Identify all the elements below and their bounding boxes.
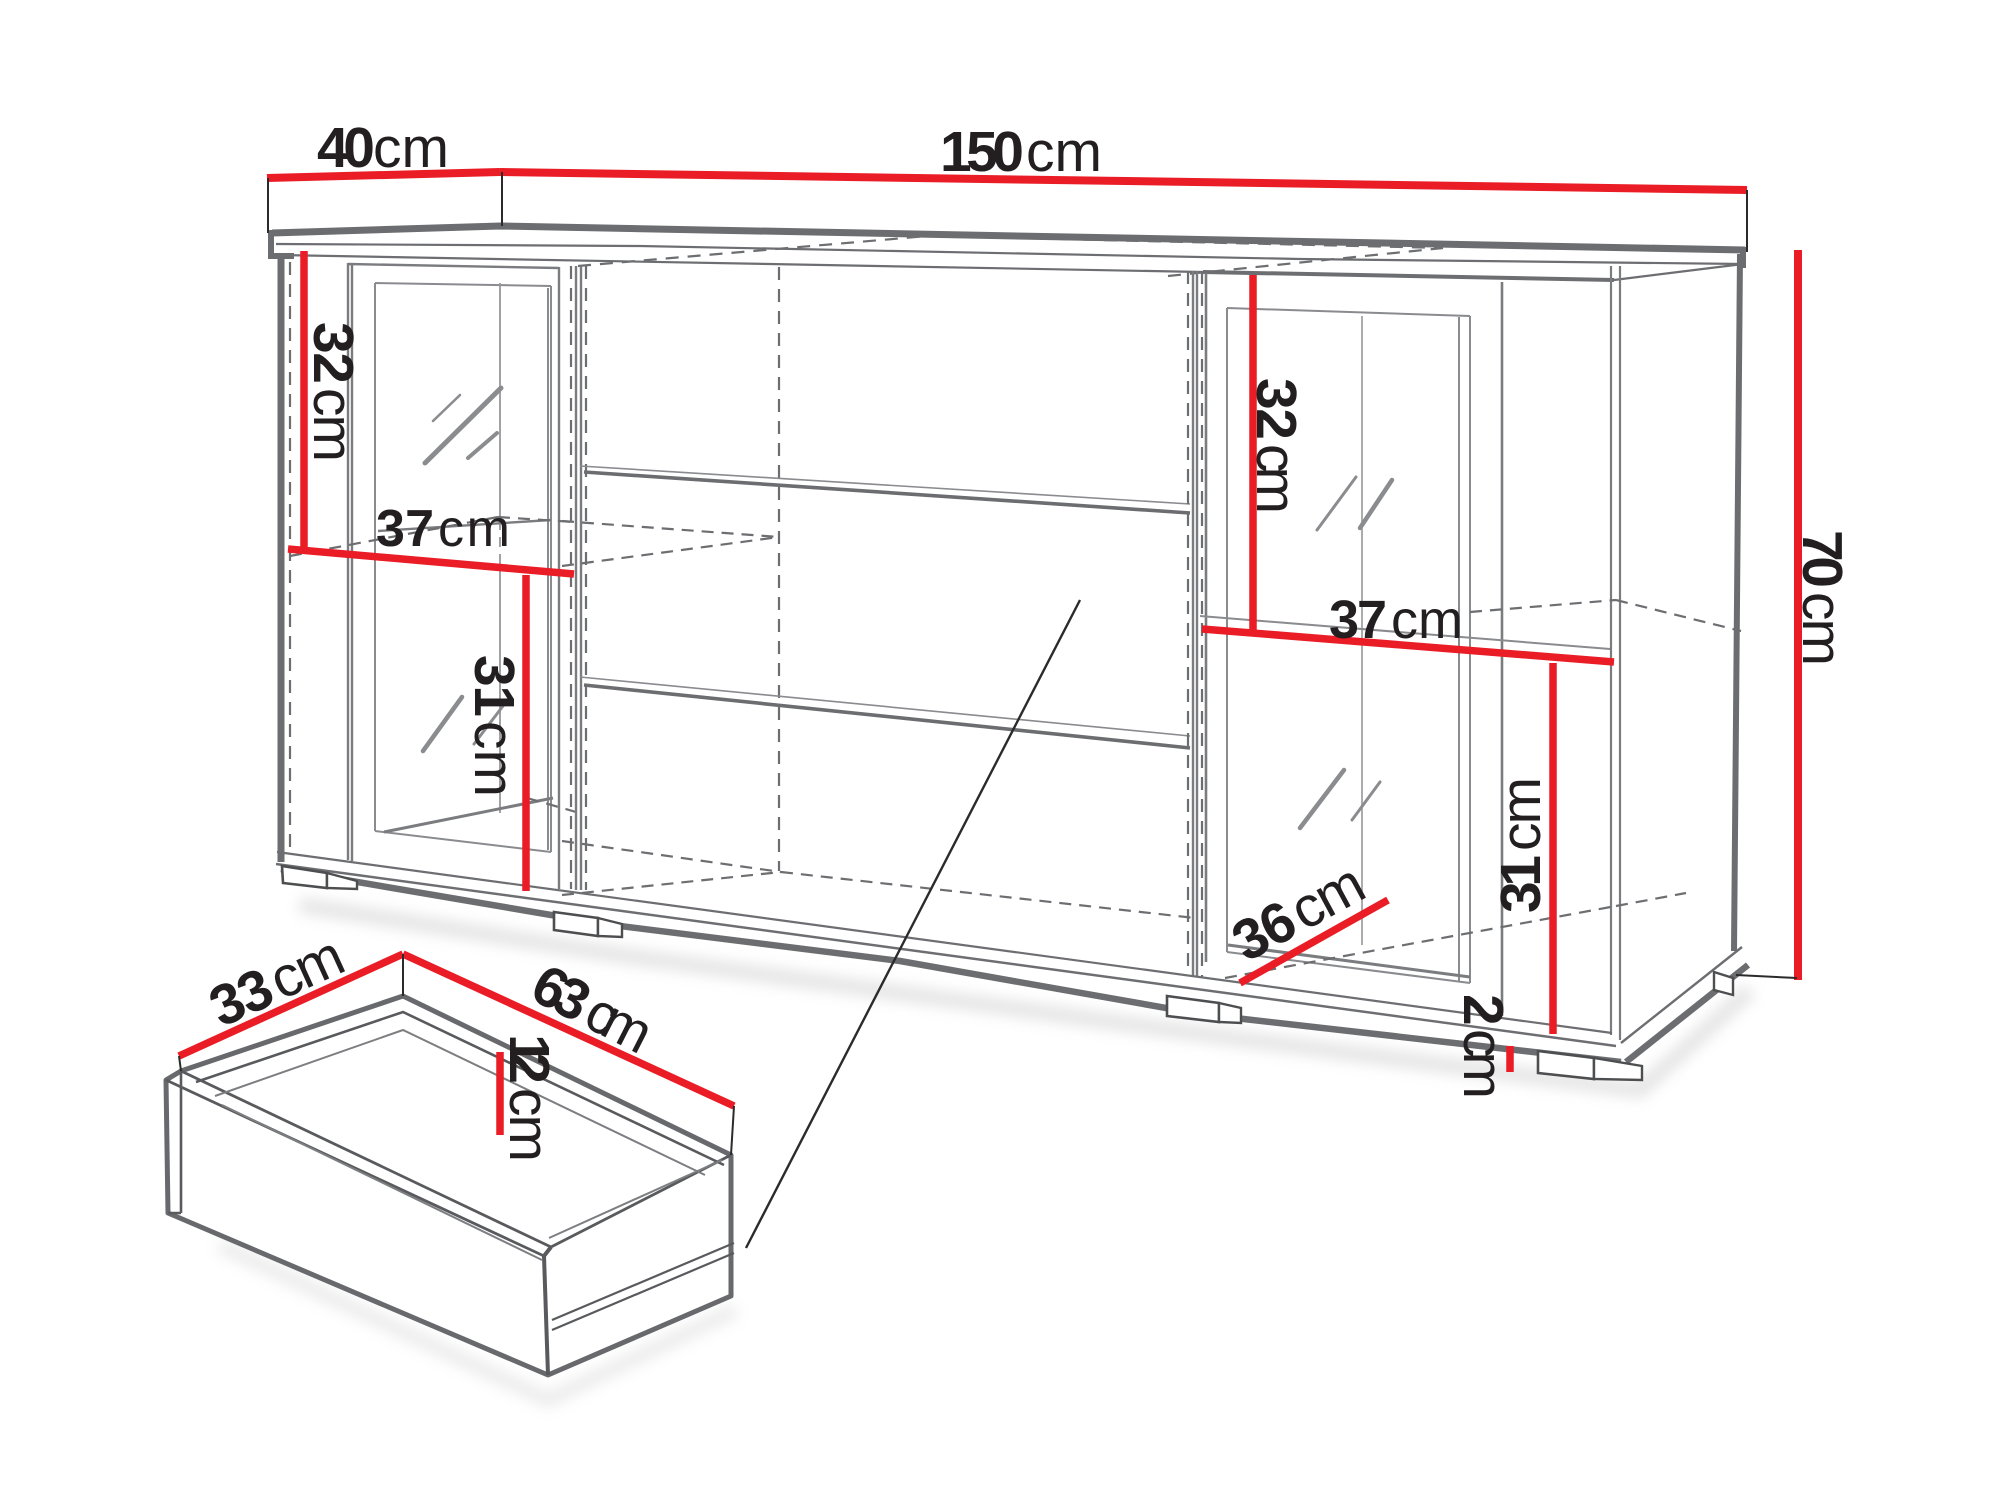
svg-text:cm: cm — [373, 116, 449, 180]
svg-text:cm: cm — [497, 1088, 561, 1162]
svg-text:cm: cm — [1451, 1029, 1515, 1099]
svg-text:40: 40 — [317, 116, 375, 180]
svg-text:150: 150 — [940, 120, 1024, 184]
svg-text:cm: cm — [1244, 444, 1308, 514]
svg-text:cm: cm — [1489, 777, 1553, 851]
svg-text:37: 37 — [376, 500, 434, 558]
svg-text:cm: cm — [1790, 592, 1854, 666]
svg-text:cm: cm — [1026, 120, 1102, 184]
svg-text:cm: cm — [462, 721, 526, 797]
svg-text:cm: cm — [1391, 590, 1463, 650]
svg-text:37: 37 — [1329, 590, 1387, 650]
svg-text:32: 32 — [1244, 378, 1308, 440]
svg-text:70: 70 — [1790, 530, 1854, 588]
svg-text:32: 32 — [301, 322, 365, 384]
svg-text:12: 12 — [497, 1034, 561, 1084]
svg-text:cm: cm — [301, 388, 365, 462]
svg-text:31: 31 — [462, 655, 526, 717]
svg-text:2: 2 — [1451, 994, 1515, 1026]
svg-text:cm: cm — [438, 500, 510, 558]
svg-text:31: 31 — [1489, 855, 1553, 913]
